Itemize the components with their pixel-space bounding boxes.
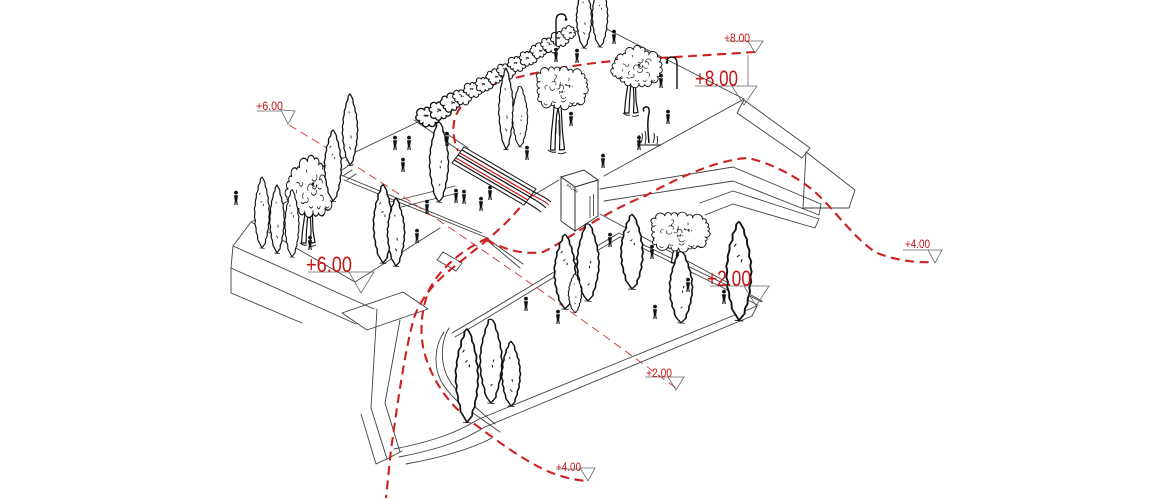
svg-text:+4.00: +4.00 [905, 239, 930, 251]
svg-text:+8.00: +8.00 [695, 66, 738, 91]
svg-text:+6.00: +6.00 [256, 101, 283, 113]
svg-text:+6.00: +6.00 [306, 252, 352, 277]
svg-text:+2.00: +2.00 [646, 368, 672, 380]
svg-text:+4.00: +4.00 [556, 462, 581, 474]
svg-text:+2.00: +2.00 [707, 266, 751, 291]
svg-text:+8.00: +8.00 [724, 33, 750, 45]
